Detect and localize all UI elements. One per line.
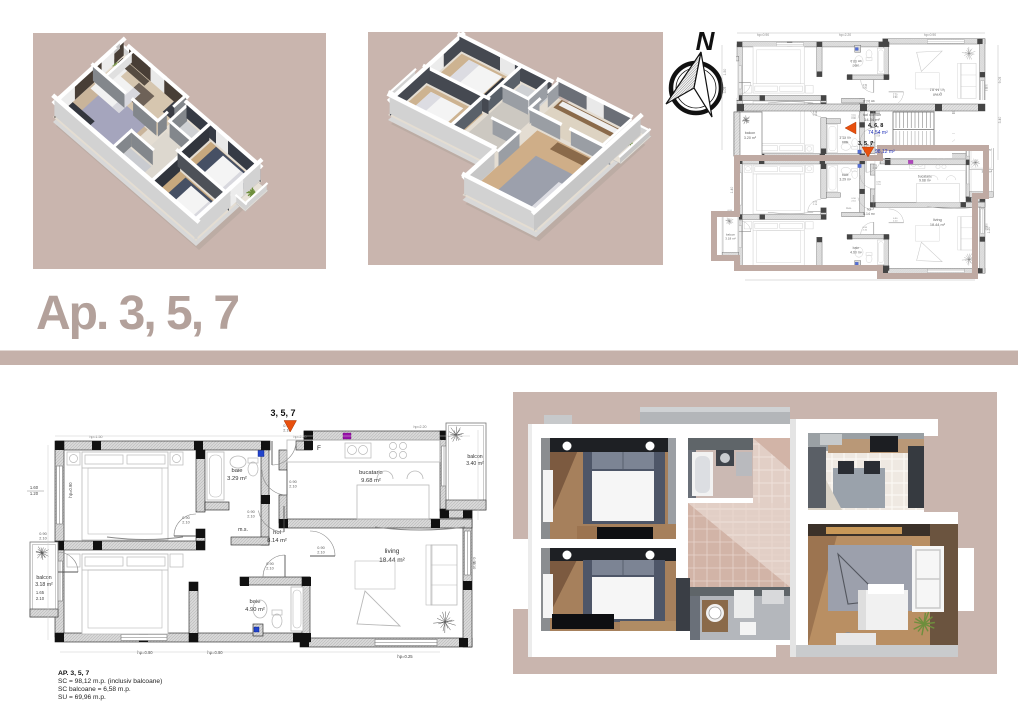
svg-text:hp=0.90: hp=0.90 — [757, 33, 769, 37]
svg-text:1.20: 1.20 — [30, 491, 39, 496]
svg-text:3.40: 3.40 — [998, 117, 1002, 124]
svg-text:hp=2.20: hp=2.20 — [839, 33, 851, 37]
svg-text:hp=1.50: hp=1.50 — [89, 435, 102, 439]
svg-text:2.10: 2.10 — [36, 596, 45, 601]
svg-text:hp=0.25: hp=0.25 — [397, 654, 413, 659]
svg-text:74,54 m²: 74,54 m² — [868, 130, 888, 136]
svg-text:98,12 m²: 98,12 m² — [875, 149, 895, 155]
svg-text:SC balcoane = 6,58 m.p.: SC balcoane = 6,58 m.p. — [58, 686, 131, 693]
svg-text:1.40: 1.40 — [730, 187, 734, 194]
svg-text:3.05: 3.05 — [723, 87, 727, 94]
svg-text:AP. 3, 5, 7: AP. 3, 5, 7 — [58, 670, 89, 677]
svg-text:3, 5, 7: 3, 5, 7 — [858, 141, 873, 147]
svg-text:3, 5, 7: 3, 5, 7 — [270, 408, 295, 418]
svg-text:Ap. 3, 5, 7: Ap. 3, 5, 7 — [36, 287, 238, 340]
svg-text:hp=0.90: hp=0.90 — [924, 33, 936, 37]
svg-text:4, 6, 8: 4, 6, 8 — [868, 123, 883, 129]
svg-text:1.65: 1.65 — [36, 590, 45, 595]
svg-text:N: N — [696, 26, 716, 56]
svg-text:hp=0.90: hp=0.90 — [207, 650, 223, 655]
svg-text:SU = 69,96 m.p.: SU = 69,96 m.p. — [58, 694, 106, 701]
svg-text:1.60: 1.60 — [30, 485, 39, 490]
svg-text:SC = 98,12 m.p. (inclusiv bal: SC = 98,12 m.p. (inclusiv balcoane) — [58, 678, 162, 685]
svg-text:hp=2.20: hp=2.20 — [293, 435, 306, 439]
svg-text:9.05: 9.05 — [998, 77, 1002, 84]
svg-text:hp=0.90: hp=0.90 — [137, 650, 153, 655]
svg-text:hp=2.20: hp=2.20 — [413, 425, 426, 429]
svg-text:1.20: 1.20 — [987, 227, 991, 234]
svg-text:1.50: 1.50 — [723, 69, 727, 76]
svg-text:hp=0.90: hp=0.90 — [68, 482, 73, 498]
